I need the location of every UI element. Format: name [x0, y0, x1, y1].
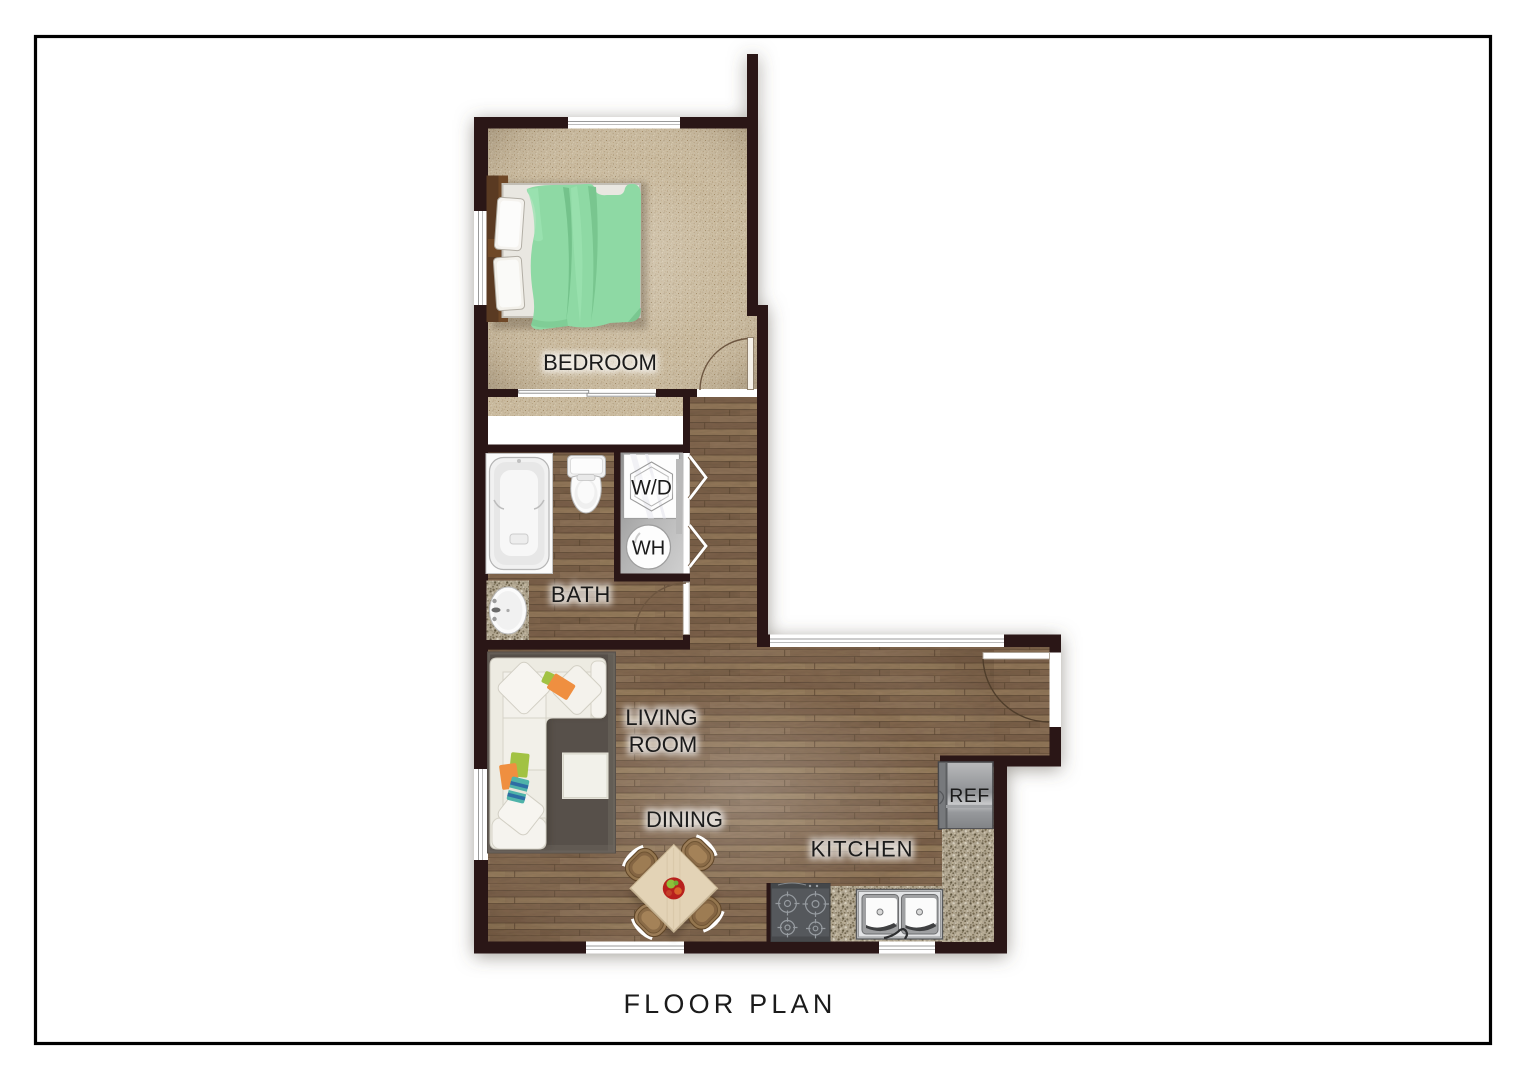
svg-text:BATH: BATH — [551, 582, 611, 607]
svg-text:W/D: W/D — [631, 477, 672, 500]
svg-text:DINING: DINING — [646, 807, 723, 832]
svg-text:ROOM: ROOM — [629, 732, 697, 757]
svg-text:KITCHEN: KITCHEN — [811, 837, 914, 862]
svg-text:REF: REF — [949, 785, 990, 807]
svg-text:LIVING: LIVING — [625, 705, 697, 730]
svg-text:FLOOR PLAN: FLOOR PLAN — [623, 989, 836, 1019]
svg-text:WH: WH — [632, 538, 665, 560]
svg-text:BEDROOM: BEDROOM — [543, 350, 657, 375]
